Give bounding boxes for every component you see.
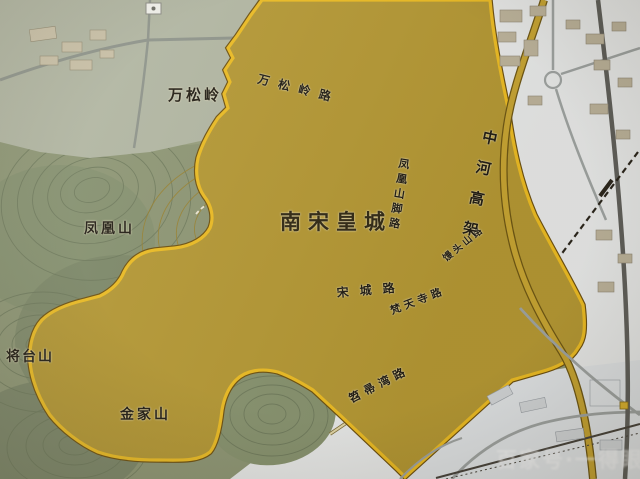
map-marker-icon [146,3,161,14]
watermark-text: 百家号·一得眼 [496,444,640,474]
road-marker-icon [620,402,628,409]
map-photo: 万松岭 凤凰山 将台山 金家山 南宋皇城 万松岭路 凤凰山脚路 馒头山路 中河高… [0,0,640,479]
map-graphic [0,0,640,479]
